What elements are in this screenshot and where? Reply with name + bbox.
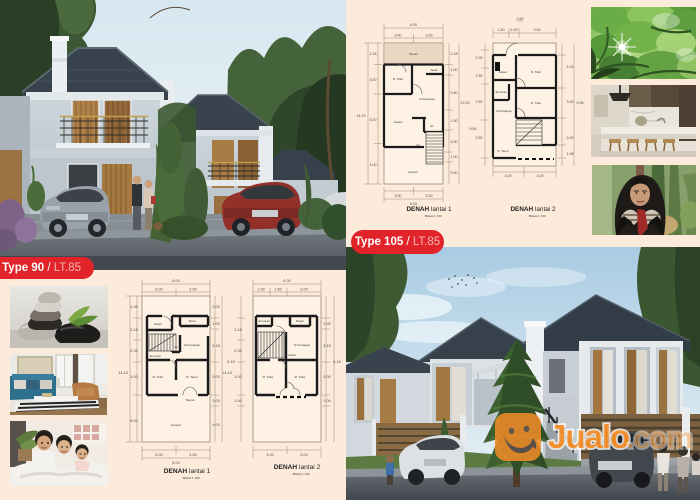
svg-text:1.95: 1.95 (130, 305, 137, 309)
svg-text:6.00: 6.00 (410, 23, 417, 27)
svg-text:2.00: 2.00 (476, 56, 483, 60)
svg-text:1.08: 1.08 (567, 152, 574, 156)
svg-text:Taman: Taman (409, 52, 418, 56)
svg-text:3.18: 3.18 (212, 344, 219, 348)
svg-text:14.18: 14.18 (222, 371, 232, 375)
svg-text:DENAH lantai 2: DENAH lantai 2 (510, 206, 556, 213)
svg-text:3.00: 3.00 (300, 288, 307, 292)
svg-text:1.50: 1.50 (476, 74, 483, 78)
svg-text:3.00: 3.00 (266, 453, 273, 457)
svg-text:Teras: Teras (188, 319, 196, 323)
svg-text:14.13: 14.13 (357, 114, 366, 118)
svg-text:SKALA 1 : 100: SKALA 1 : 100 (293, 472, 310, 476)
svg-text:R.Keluarga: R.Keluarga (419, 97, 434, 101)
svg-text:2.18: 2.18 (451, 52, 458, 56)
svg-text:4.00: 4.00 (212, 423, 219, 427)
svg-text:Dapur: Dapur (154, 322, 162, 326)
svg-text:wc: wc (430, 124, 434, 128)
svg-text:3.00: 3.00 (189, 453, 196, 457)
svg-text:12.02: 12.02 (461, 101, 470, 105)
svg-text:1.00: 1.00 (511, 28, 518, 32)
svg-text:Jemuran: Jemuran (149, 354, 161, 358)
svg-text:2.50: 2.50 (476, 100, 483, 104)
svg-text:Dapur: Dapur (296, 319, 304, 323)
svg-text:2.18: 2.18 (234, 328, 241, 332)
svg-text:5.00: 5.00 (130, 419, 137, 423)
svg-text:6.00: 6.00 (283, 279, 290, 283)
svg-text:R. Tidur: R. Tidur (295, 375, 306, 379)
svg-text:DENAH lantai 1: DENAH lantai 1 (164, 468, 211, 475)
svg-text:1.00: 1.00 (234, 399, 241, 403)
svg-text:2.18: 2.18 (130, 328, 137, 332)
svg-text:3.18: 3.18 (323, 344, 330, 348)
svg-text:1.00: 1.00 (212, 322, 219, 326)
svg-text:DENAH lantai 1: DENAH lantai 1 (406, 206, 452, 213)
svg-text:3.00: 3.00 (567, 100, 574, 104)
svg-text:1.00: 1.00 (451, 68, 458, 72)
svg-text:4.00: 4.00 (370, 163, 377, 167)
svg-text:3.00: 3.00 (370, 78, 377, 82)
svg-text:Jualo: Jualo (548, 418, 629, 455)
svg-text:2.00: 2.00 (130, 349, 137, 353)
svg-text:R. Tidur: R. Tidur (153, 375, 164, 379)
svg-text:9.08: 9.08 (577, 101, 584, 105)
svg-text:SKALA 1 : 100: SKALA 1 : 100 (425, 214, 442, 218)
svg-text:5.18: 5.18 (567, 65, 574, 69)
svg-text:SKALA 1 : 100: SKALA 1 : 100 (529, 214, 546, 218)
svg-text:R.Keluarga: R.Keluarga (294, 343, 310, 347)
svg-text:3.00: 3.00 (426, 194, 433, 198)
svg-text:5.00: 5.00 (370, 118, 377, 122)
svg-text:3.00: 3.00 (426, 34, 433, 38)
svg-text:0.50: 0.50 (517, 17, 524, 21)
svg-text:3.00: 3.00 (451, 171, 458, 175)
svg-text:R.Keluarga: R.Keluarga (184, 343, 200, 347)
svg-text:3.00: 3.00 (505, 174, 512, 178)
svg-text:8.18: 8.18 (227, 360, 234, 364)
svg-text:R.Keluarga: R.Keluarga (496, 109, 511, 113)
svg-text:9.50: 9.50 (470, 127, 477, 131)
svg-text:Teras: Teras (430, 68, 438, 72)
svg-text:1.50: 1.50 (498, 28, 505, 32)
svg-text:6.00: 6.00 (172, 461, 179, 465)
svg-text:3.00: 3.00 (155, 288, 162, 292)
svg-text:3.00: 3.00 (537, 174, 544, 178)
svg-text:3.00: 3.00 (234, 375, 241, 379)
svg-text:3.00: 3.00 (534, 28, 541, 32)
svg-text:3.50: 3.50 (476, 136, 483, 140)
svg-text:Carport: Carport (408, 170, 418, 174)
svg-text:3.00: 3.00 (212, 375, 219, 379)
svg-text:lantai: lantai (288, 353, 296, 357)
svg-text:SKALA 1 : 100: SKALA 1 : 100 (183, 476, 200, 480)
svg-text:3.00: 3.00 (323, 375, 330, 379)
svg-text:3.00: 3.00 (130, 375, 137, 379)
svg-text:3.00: 3.00 (155, 453, 162, 457)
svg-text:R. Tidur: R. Tidur (263, 375, 274, 379)
svg-text:3.00: 3.00 (300, 453, 307, 457)
svg-text:14.13: 14.13 (118, 371, 128, 375)
svg-text:3.00: 3.00 (189, 288, 196, 292)
svg-text:Carport: Carport (171, 423, 181, 427)
svg-text:R. Tidur: R. Tidur (531, 70, 542, 74)
svg-text:wc: wc (416, 143, 420, 147)
svg-text:2.18: 2.18 (370, 52, 377, 56)
svg-text:8.18: 8.18 (333, 360, 340, 364)
svg-text:3.50: 3.50 (451, 91, 458, 95)
svg-text:2.00: 2.00 (212, 305, 219, 309)
svg-text:Garasi: Garasi (394, 120, 403, 124)
svg-text:1.50: 1.50 (274, 288, 281, 292)
svg-text:1.00: 1.00 (451, 155, 458, 159)
svg-text:R. Tamu: R. Tamu (186, 375, 198, 379)
svg-text:Jemuran: Jemuran (495, 90, 507, 94)
svg-text:2.00: 2.00 (567, 136, 574, 140)
svg-text:Taman: Taman (185, 398, 195, 402)
svg-text:3.00: 3.00 (395, 34, 402, 38)
svg-text:1.00: 1.00 (323, 322, 330, 326)
svg-text:3.00: 3.00 (395, 194, 402, 198)
svg-text:.com: .com (626, 422, 692, 455)
svg-text:1.50: 1.50 (257, 288, 264, 292)
svg-text:2.00: 2.00 (234, 349, 241, 353)
svg-text:1.00: 1.00 (323, 399, 330, 403)
svg-text:R. Tidur: R. Tidur (531, 101, 542, 105)
svg-text:1.50: 1.50 (451, 119, 458, 123)
svg-text:R. Tidur: R. Tidur (393, 77, 404, 81)
svg-text:R. Tamu: R. Tamu (497, 149, 508, 153)
svg-text:3.00: 3.00 (451, 140, 458, 144)
svg-text:Jemuran: Jemuran (258, 319, 270, 323)
svg-text:Dapur: Dapur (499, 70, 507, 74)
svg-text:1.00: 1.00 (212, 399, 219, 403)
svg-text:wc: wc (174, 345, 178, 349)
svg-text:6.00: 6.00 (172, 279, 179, 283)
svg-text:DENAH lantai 2: DENAH lantai 2 (274, 464, 321, 471)
